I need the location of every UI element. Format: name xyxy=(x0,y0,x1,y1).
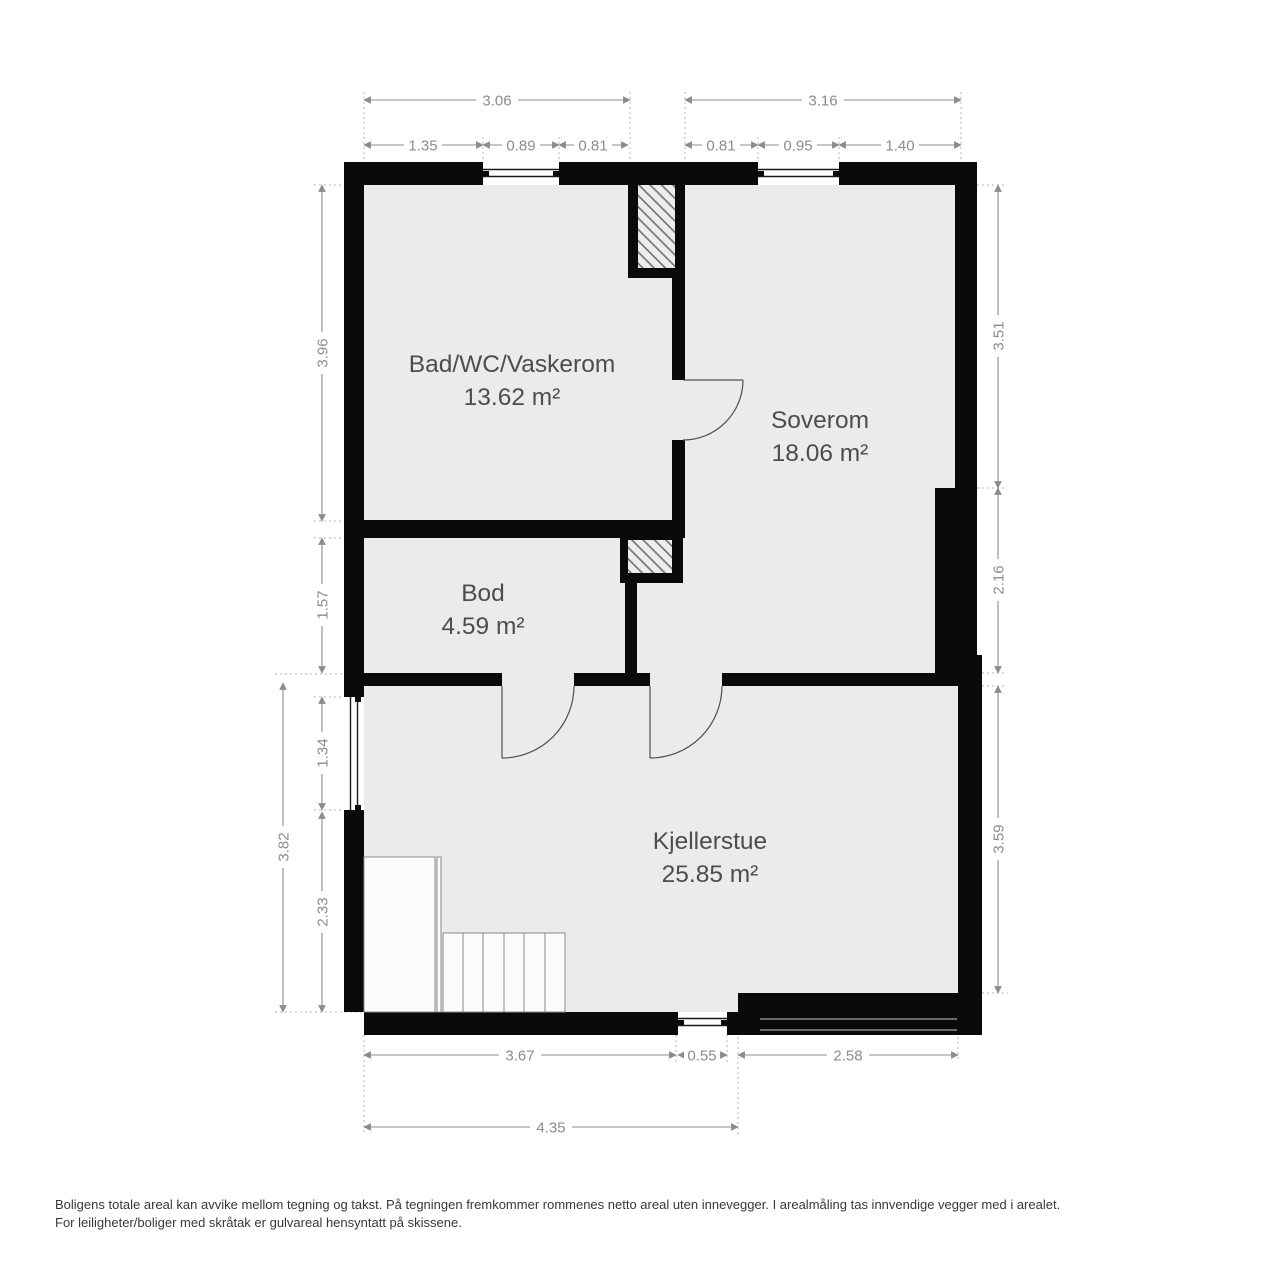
wall-right-lower xyxy=(958,673,982,1035)
window-left xyxy=(344,697,364,810)
dim-bottom-left: 3.67 xyxy=(364,1046,676,1064)
dim-label: 4.35 xyxy=(536,1119,565,1136)
wall-right-mid xyxy=(935,488,977,673)
dim-bottom-window: 0.55 xyxy=(678,1046,727,1064)
wall-right-upper xyxy=(955,162,977,492)
window-top-left xyxy=(483,162,559,185)
dim-label: 3.16 xyxy=(808,92,837,109)
dim-label: 0.55 xyxy=(687,1047,716,1064)
dim-label: 0.81 xyxy=(706,137,735,154)
wall-bad-soverom-lower xyxy=(672,440,685,530)
dim-left-bad: 3.96 xyxy=(313,185,331,521)
room-area-bod: 4.59 m² xyxy=(441,613,524,640)
dim-label: 3.59 xyxy=(990,824,1007,853)
room-name-kjellerstue: Kjellerstue xyxy=(653,828,767,855)
wall-left-lower xyxy=(344,810,364,1012)
dim-label: 3.67 xyxy=(505,1047,534,1064)
wall-kjellerstue-c xyxy=(722,673,958,686)
dim-label: 1.40 xyxy=(885,137,914,154)
dim-top-sub-2: 0.89 xyxy=(483,136,559,154)
stair-landing xyxy=(364,857,435,1012)
footer-disclaimer: Boligens totale areal kan avvike mellom … xyxy=(55,1196,1195,1232)
dim-right-upper: 3.51 xyxy=(989,185,1007,488)
wall-bottom-right xyxy=(738,993,982,1035)
floor-plan-svg: 3.06 3.16 1.35 0.89 0.81 0.81 0.95 1.40 xyxy=(0,0,1280,1280)
dim-top-overall-right: 3.16 xyxy=(685,91,961,109)
stair-handrail xyxy=(437,857,441,1012)
dim-top-sub-6: 1.40 xyxy=(839,136,961,154)
room-area-kjellerstue: 25.85 m² xyxy=(662,861,759,888)
dim-top-sub-1: 1.35 xyxy=(364,136,483,154)
dim-label: 2.58 xyxy=(833,1047,862,1064)
shaft-top-hatch xyxy=(638,185,675,268)
dim-top-sub-3: 0.81 xyxy=(559,136,628,154)
room-name-bod: Bod xyxy=(461,580,505,607)
dim-right-lower: 3.59 xyxy=(989,686,1007,993)
dim-label: 0.95 xyxy=(783,137,812,154)
dim-label: 3.06 xyxy=(482,92,511,109)
shaft-mid-hatch xyxy=(628,540,672,573)
dim-label: 3.51 xyxy=(990,321,1007,350)
dim-label: 3.96 xyxy=(314,338,331,367)
dim-label: 1.35 xyxy=(408,137,437,154)
dim-label: 1.57 xyxy=(314,590,331,619)
wall-bad-soverom-upper xyxy=(672,278,685,380)
dim-label: 0.89 xyxy=(506,137,535,154)
window-top-right xyxy=(758,162,839,185)
dim-label: 2.33 xyxy=(314,897,331,926)
dim-top-overall-left: 3.06 xyxy=(364,91,630,109)
dim-right-mid: 2.16 xyxy=(989,488,1007,673)
wall-bod-soverom xyxy=(625,583,637,686)
footer-line-1: Boligens totale areal kan avvike mellom … xyxy=(55,1196,1195,1214)
room-name-soverom: Soverom xyxy=(771,407,869,434)
wall-kjellerstue-b xyxy=(574,673,650,686)
dim-left-lower: 2.33 xyxy=(313,812,331,1012)
dim-left-window: 1.34 xyxy=(313,697,331,810)
dim-bottom-right: 2.58 xyxy=(738,1046,958,1064)
floor-plan-page: 3.06 3.16 1.35 0.89 0.81 0.81 0.95 1.40 xyxy=(0,0,1280,1280)
dim-left-bod: 1.57 xyxy=(313,538,331,673)
dim-label: 0.81 xyxy=(578,137,607,154)
dim-label: 2.16 xyxy=(990,565,1007,594)
room-area-soverom: 18.06 m² xyxy=(772,440,869,467)
room-name-bad: Bad/WC/Vaskerom xyxy=(409,351,616,378)
dim-bottom-overall: 4.35 xyxy=(364,1118,738,1136)
footer-line-2: For leiligheter/boliger med skråtak er g… xyxy=(55,1214,1195,1232)
dim-label: 3.82 xyxy=(275,832,292,861)
dim-left-overall: 3.82 xyxy=(274,683,292,1012)
wall-left-upper xyxy=(344,162,364,697)
dim-top-sub-5: 0.95 xyxy=(758,136,839,154)
window-bottom xyxy=(678,1012,727,1035)
room-area-bad: 13.62 m² xyxy=(464,384,561,411)
dim-top-sub-4: 0.81 xyxy=(685,136,758,154)
wall-kjellerstue-a xyxy=(344,673,502,686)
dim-label: 1.34 xyxy=(314,738,331,767)
